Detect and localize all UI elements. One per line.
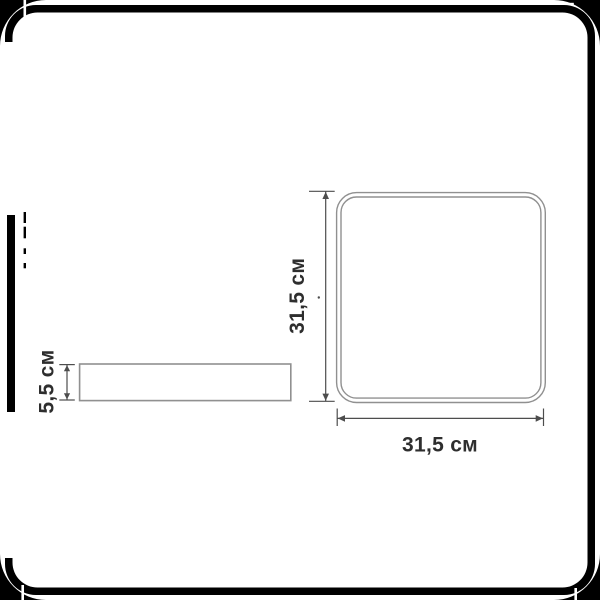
frame-slit-top-left [24,0,27,210]
frame-slit-top-right [540,3,574,5]
dot-artifact [318,296,320,298]
side-view-outline [80,364,291,401]
top-view-outline-outer [337,193,546,403]
side-view [80,364,291,401]
frame-slit-bottom-right [574,588,577,600]
dash-mark [24,227,26,239]
frame-slit-bottom-left [21,585,24,600]
dash-mark [24,212,26,223]
label-top-view-height: 31,5 см [286,258,309,334]
dash-mark [24,248,26,254]
label-side-view-height: 5,5 см [36,350,59,414]
dash-mark [24,263,26,268]
left-edge-bar [7,215,15,412]
dimension-diagram-image: 31,5 см 31,5 см 5,5 см [0,0,600,600]
label-top-view-width: 31,5 см [402,434,478,457]
top-view [337,193,546,403]
